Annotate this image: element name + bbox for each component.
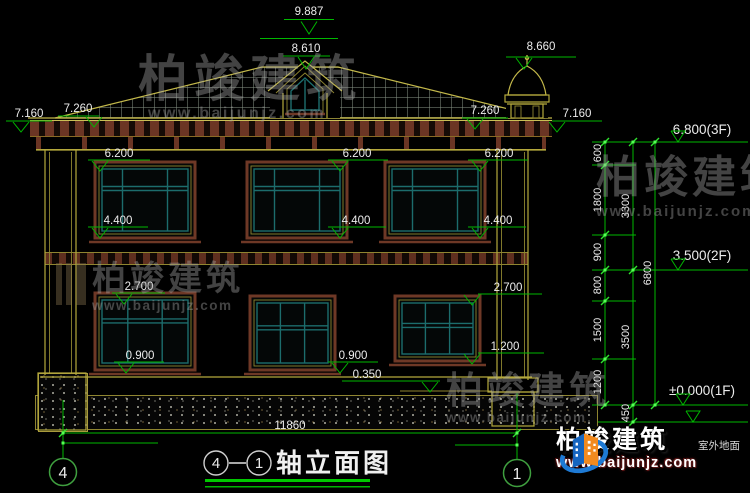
porch-elevation: 0.350 [353,369,382,381]
f2-sill-left: 4.400 [104,215,133,227]
watermark-url: www.baijunjz.com [92,299,244,313]
dim-900: 900 [592,243,604,261]
window-1f-middle [244,296,341,374]
axis-bubble-left: 4 [59,465,68,482]
watermark-brand: 柏竣建筑 [446,370,610,411]
cad-linework: 9.887 8.610 8.660 7.160 7.260 7.260 7.16… [0,0,750,493]
dim-450: 450 [620,404,632,422]
elevation-drawing: 9.887 8.610 8.660 7.160 7.260 7.260 7.16… [0,0,750,493]
f1-sill-left: 0.900 [126,350,155,362]
watermark-url: www.baijunjz.com [138,106,362,122]
dim-800: 800 [592,276,604,294]
ridge-elevation: 9.887 [295,6,324,18]
dim-1500: 1500 [592,318,604,342]
f1-head-right: 2.700 [494,282,523,294]
axis-bubble-right: 1 [513,466,522,483]
f2-sill-middle: 4.400 [342,215,371,227]
watermark-bottom: 柏竣建筑 www.baijunjz.com [446,372,610,425]
f2-head-right: 6.200 [485,148,514,160]
watermark-building-icon [56,263,86,305]
watermark-url: www.baijunjz.com [446,411,610,425]
watermark-url: www.baijunjz.com [596,204,750,219]
title-text: 轴立面图 [276,448,392,478]
f1-sill-middle: 0.900 [339,350,368,362]
logo-building-icon [556,427,612,479]
overall-width: 11860 [274,420,305,432]
watermark-top: 柏竣建筑 www.baijunjz.com [138,54,362,122]
watermark-brand: 柏竣建筑 [138,51,362,107]
dim-6800: 6800 [642,261,654,285]
f2-head-left: 6.200 [105,148,134,160]
f2-sill-right: 4.400 [484,215,513,227]
title-axis-b: 1 [255,455,263,472]
watermark-brand: 柏竣建筑 [92,260,244,298]
site-logo: 柏竣建筑 www.baijunjz.com [556,427,697,471]
watermark-brand: 柏竣建筑 [596,153,750,202]
window-1f-right-small [389,296,486,365]
f2-head-middle: 6.200 [343,148,372,160]
level-2f: 3.500(2F) [673,248,732,263]
eave-elevation-right: 7.160 [563,108,592,120]
f1-sill-small: 1.200 [491,341,520,353]
watermark-right: 柏竣建筑 www.baijunjz.com [596,156,750,219]
eave-elevation-left: 7.160 [15,108,44,120]
level-1f: ±0.000(1F) [669,383,735,398]
eave-slope-left: 7.260 [64,103,93,115]
level-3f: 6.800(3F) [673,122,732,137]
outdoor-ground-note: 室外地面 [698,439,740,452]
dim-3500: 3500 [620,325,632,349]
chimney-elevation: 8.660 [527,41,556,53]
watermark-left: 柏竣建筑 www.baijunjz.com [92,262,244,313]
window-2f-middle [241,162,353,242]
title-axis-a: 4 [212,455,220,472]
drawing-title: 4 1 轴立面图 [204,448,392,488]
eave-slope-right: 7.260 [471,105,500,117]
